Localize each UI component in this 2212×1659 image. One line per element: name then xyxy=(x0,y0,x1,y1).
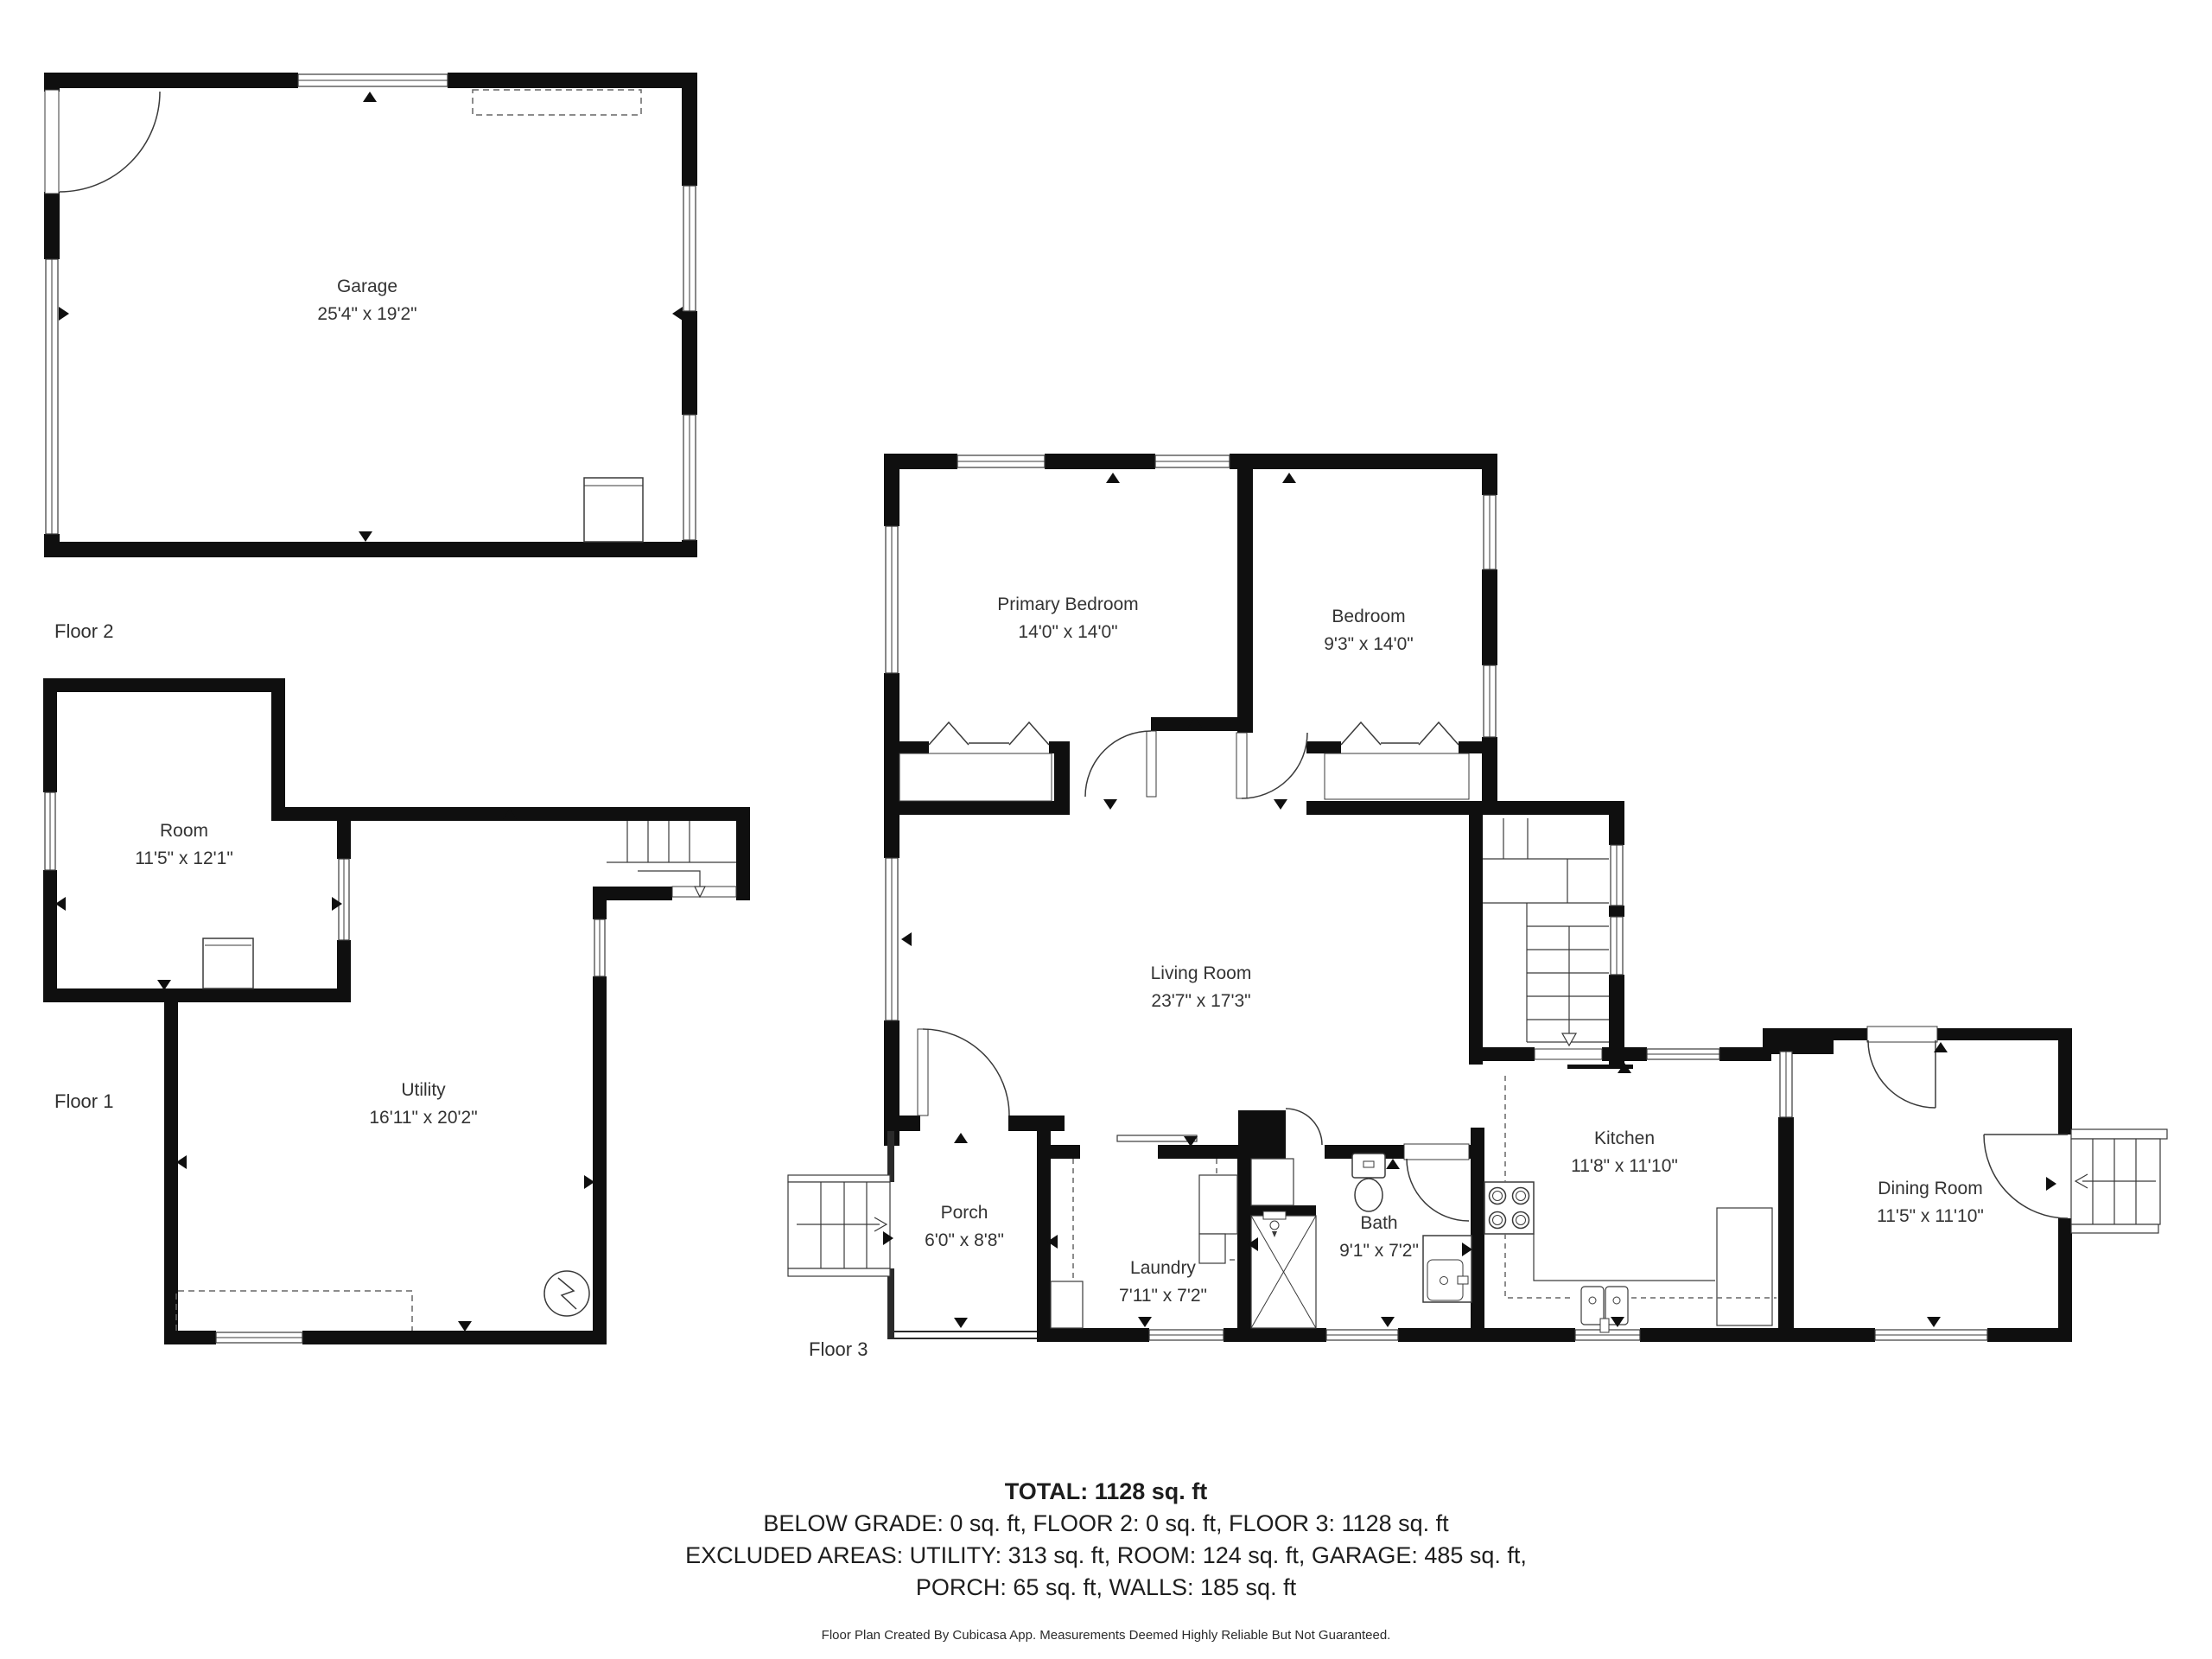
room-name: Laundry xyxy=(1119,1255,1207,1282)
room-dims: 16'11" x 20'2" xyxy=(369,1104,477,1132)
kitchen-counter xyxy=(1534,1234,1715,1281)
summary-total: TOTAL: 1128 sq. ft xyxy=(0,1478,2212,1505)
window xyxy=(1647,1049,1719,1059)
wall xyxy=(43,678,750,1344)
summary-excluded-areas-cont: PORCH: 65 sq. ft, WALLS: 185 sq. ft xyxy=(0,1574,2212,1601)
floor-plan-drawing xyxy=(0,0,2212,1659)
window xyxy=(45,792,55,870)
closet-door-arc xyxy=(1286,1109,1322,1145)
room-name: Garage xyxy=(317,273,416,301)
staircase-icon xyxy=(1483,818,1609,1046)
door xyxy=(1236,733,1307,798)
floor1-plan xyxy=(43,678,750,1344)
room-dims: 14'0" x 14'0" xyxy=(997,619,1138,646)
garage-door-dashed-outline xyxy=(473,90,641,115)
room-label-garage: Garage 25'4" x 19'2" xyxy=(317,273,416,328)
room-label-room: Room 11'5" x 12'1" xyxy=(135,817,233,873)
water-heater-icon xyxy=(544,1271,589,1316)
dining-exterior-door xyxy=(1984,1135,2072,1218)
shower-icon xyxy=(1251,1211,1316,1328)
toilet-icon xyxy=(1352,1154,1385,1211)
floor-label-1: Floor 1 xyxy=(54,1090,113,1113)
stair-threshold xyxy=(1535,1049,1602,1059)
room-dims: 11'5" x 11'10" xyxy=(1877,1203,1984,1230)
door-arc xyxy=(923,1029,1009,1116)
staircase-icon xyxy=(607,821,736,897)
room-dims: 6'0" x 8'8" xyxy=(925,1227,1004,1255)
room-name: Primary Bedroom xyxy=(997,591,1138,619)
dresser-icon xyxy=(203,938,253,988)
closet-bifold-doors xyxy=(899,722,1052,801)
room-dims: 23'7" x 17'3" xyxy=(1151,988,1252,1015)
wall-direction-markers xyxy=(55,809,594,1332)
window xyxy=(886,526,898,673)
door-arc xyxy=(1868,1040,1935,1108)
door-arc xyxy=(60,92,160,192)
floor-plan: Garage 25'4" x 19'2" Room 11'5" x 12'1" … xyxy=(0,0,2212,1659)
room-dims: 9'1" x 7'2" xyxy=(1339,1237,1419,1265)
room-name: Room xyxy=(135,817,233,845)
room-dims: 11'5" x 12'1" xyxy=(135,845,233,873)
window xyxy=(216,1332,302,1343)
summary-excluded-areas: EXCLUDED AREAS: UTILITY: 313 sq. ft, ROO… xyxy=(0,1542,2212,1569)
floor-label-3: Floor 3 xyxy=(809,1338,868,1361)
disclaimer-footer: Floor Plan Created By Cubicasa App. Meas… xyxy=(0,1628,2212,1643)
room-name: Kitchen xyxy=(1571,1125,1678,1153)
door xyxy=(45,90,160,194)
linen-cabinet xyxy=(1251,1159,1294,1205)
room-label-bath: Bath 9'1" x 7'2" xyxy=(1339,1210,1419,1265)
window xyxy=(594,919,605,976)
room-label-porch: Porch 6'0" x 8'8" xyxy=(925,1199,1004,1255)
room-dims: 11'8" x 11'10" xyxy=(1571,1153,1678,1180)
room-label-dining-room: Dining Room 11'5" x 11'10" xyxy=(1877,1175,1984,1230)
window xyxy=(298,74,448,86)
water-heater-icon xyxy=(584,478,643,542)
room-label-utility: Utility 16'11" x 20'2" xyxy=(369,1077,477,1132)
exterior-steps-icon xyxy=(2071,1129,2167,1233)
pass-through-opening xyxy=(1780,1052,1792,1117)
porch-steps-icon xyxy=(788,1175,890,1276)
room-label-bedroom: Bedroom 9'3" x 14'0" xyxy=(1324,603,1414,658)
room-name: Living Room xyxy=(1151,960,1252,988)
door-arc xyxy=(1242,733,1307,798)
window xyxy=(1611,917,1623,975)
window xyxy=(957,455,1045,467)
floor-label-2: Floor 2 xyxy=(54,620,113,643)
crawl-space-dashed-outline xyxy=(176,1291,412,1331)
door-arc xyxy=(1085,731,1151,797)
window xyxy=(1611,845,1623,906)
kitchen-tall-cabinet xyxy=(1717,1208,1772,1325)
stove-icon xyxy=(1484,1182,1534,1234)
front-door xyxy=(918,1029,1009,1116)
window xyxy=(1484,495,1496,569)
kitchen-sink-icon xyxy=(1581,1287,1628,1332)
room-label-laundry: Laundry 7'11" x 7'2" xyxy=(1119,1255,1207,1310)
window xyxy=(339,859,349,940)
room-name: Utility xyxy=(369,1077,477,1104)
window xyxy=(1149,1330,1224,1340)
room-dims: 25'4" x 19'2" xyxy=(317,301,416,328)
room-name: Dining Room xyxy=(1877,1175,1984,1203)
room-label-living-room: Living Room 23'7" x 17'3" xyxy=(1151,960,1252,1015)
room-label-primary-bedroom: Primary Bedroom 14'0" x 14'0" xyxy=(997,591,1138,646)
dining-door xyxy=(1867,1027,1937,1108)
room-dims: 9'3" x 14'0" xyxy=(1324,631,1414,658)
window xyxy=(1875,1330,1987,1340)
window xyxy=(1155,455,1230,467)
window xyxy=(683,415,696,540)
room-name: Bath xyxy=(1339,1210,1419,1237)
summary-floors: BELOW GRADE: 0 sq. ft, FLOOR 2: 0 sq. ft… xyxy=(0,1510,2212,1537)
window xyxy=(683,186,696,311)
window xyxy=(886,858,898,1020)
room-name: Porch xyxy=(925,1199,1004,1227)
window xyxy=(46,259,58,534)
room-label-kitchen: Kitchen 11'8" x 11'10" xyxy=(1571,1125,1678,1180)
door xyxy=(1085,731,1156,797)
room-name: Bedroom xyxy=(1324,603,1414,631)
room-dims: 7'11" x 7'2" xyxy=(1119,1282,1207,1310)
closet-bifold-doors xyxy=(1325,722,1469,799)
window xyxy=(1484,665,1496,737)
door-arc xyxy=(1984,1135,2068,1218)
window xyxy=(1326,1330,1398,1340)
